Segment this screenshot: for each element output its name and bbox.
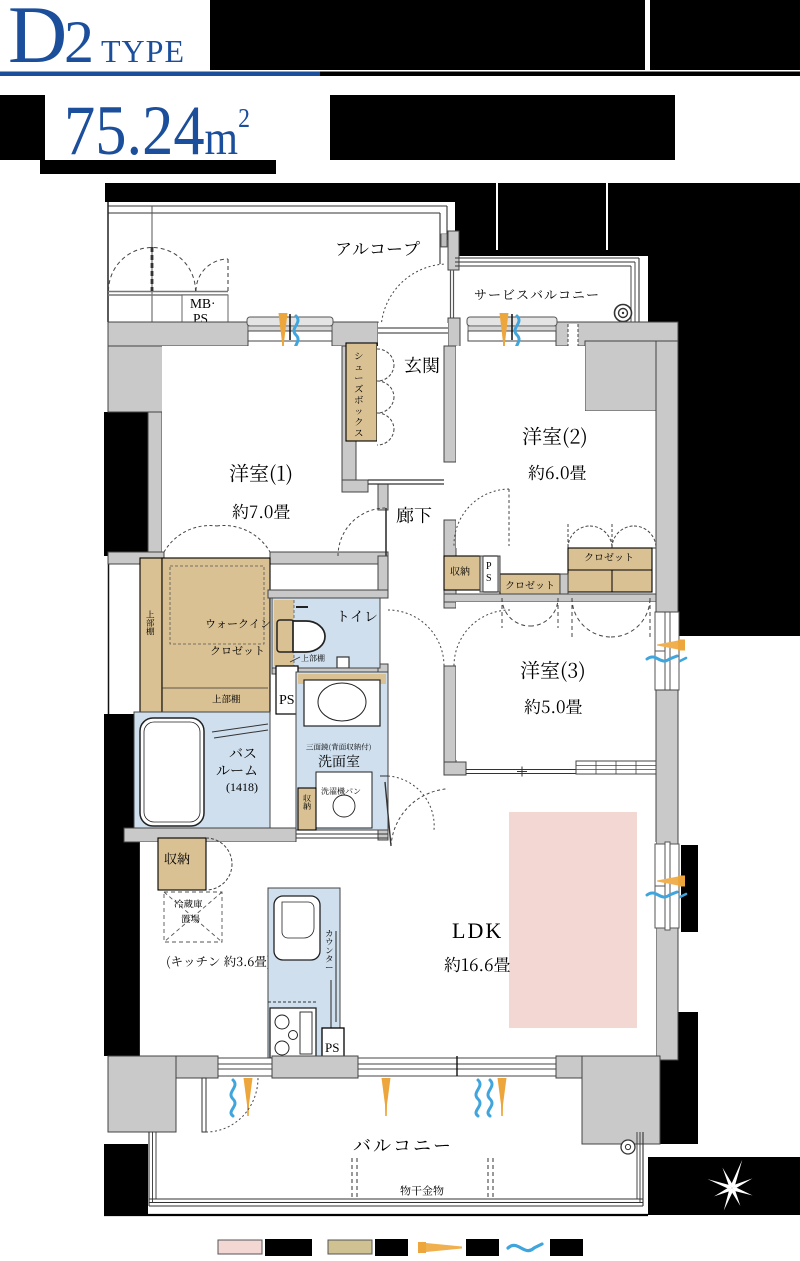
svg-text:S: S [486, 573, 492, 584]
svg-text:D: D [8, 0, 67, 80]
svg-text:2: 2 [64, 9, 94, 75]
svg-text:PS: PS [325, 1040, 339, 1055]
svg-text:TYPE: TYPE [101, 33, 185, 69]
svg-text:(1418): (1418) [226, 780, 258, 794]
svg-text:PS: PS [279, 693, 295, 708]
svg-text:MB·: MB· [190, 296, 216, 311]
svg-text:LDK: LDK [452, 918, 503, 943]
svg-text:P: P [486, 561, 492, 572]
